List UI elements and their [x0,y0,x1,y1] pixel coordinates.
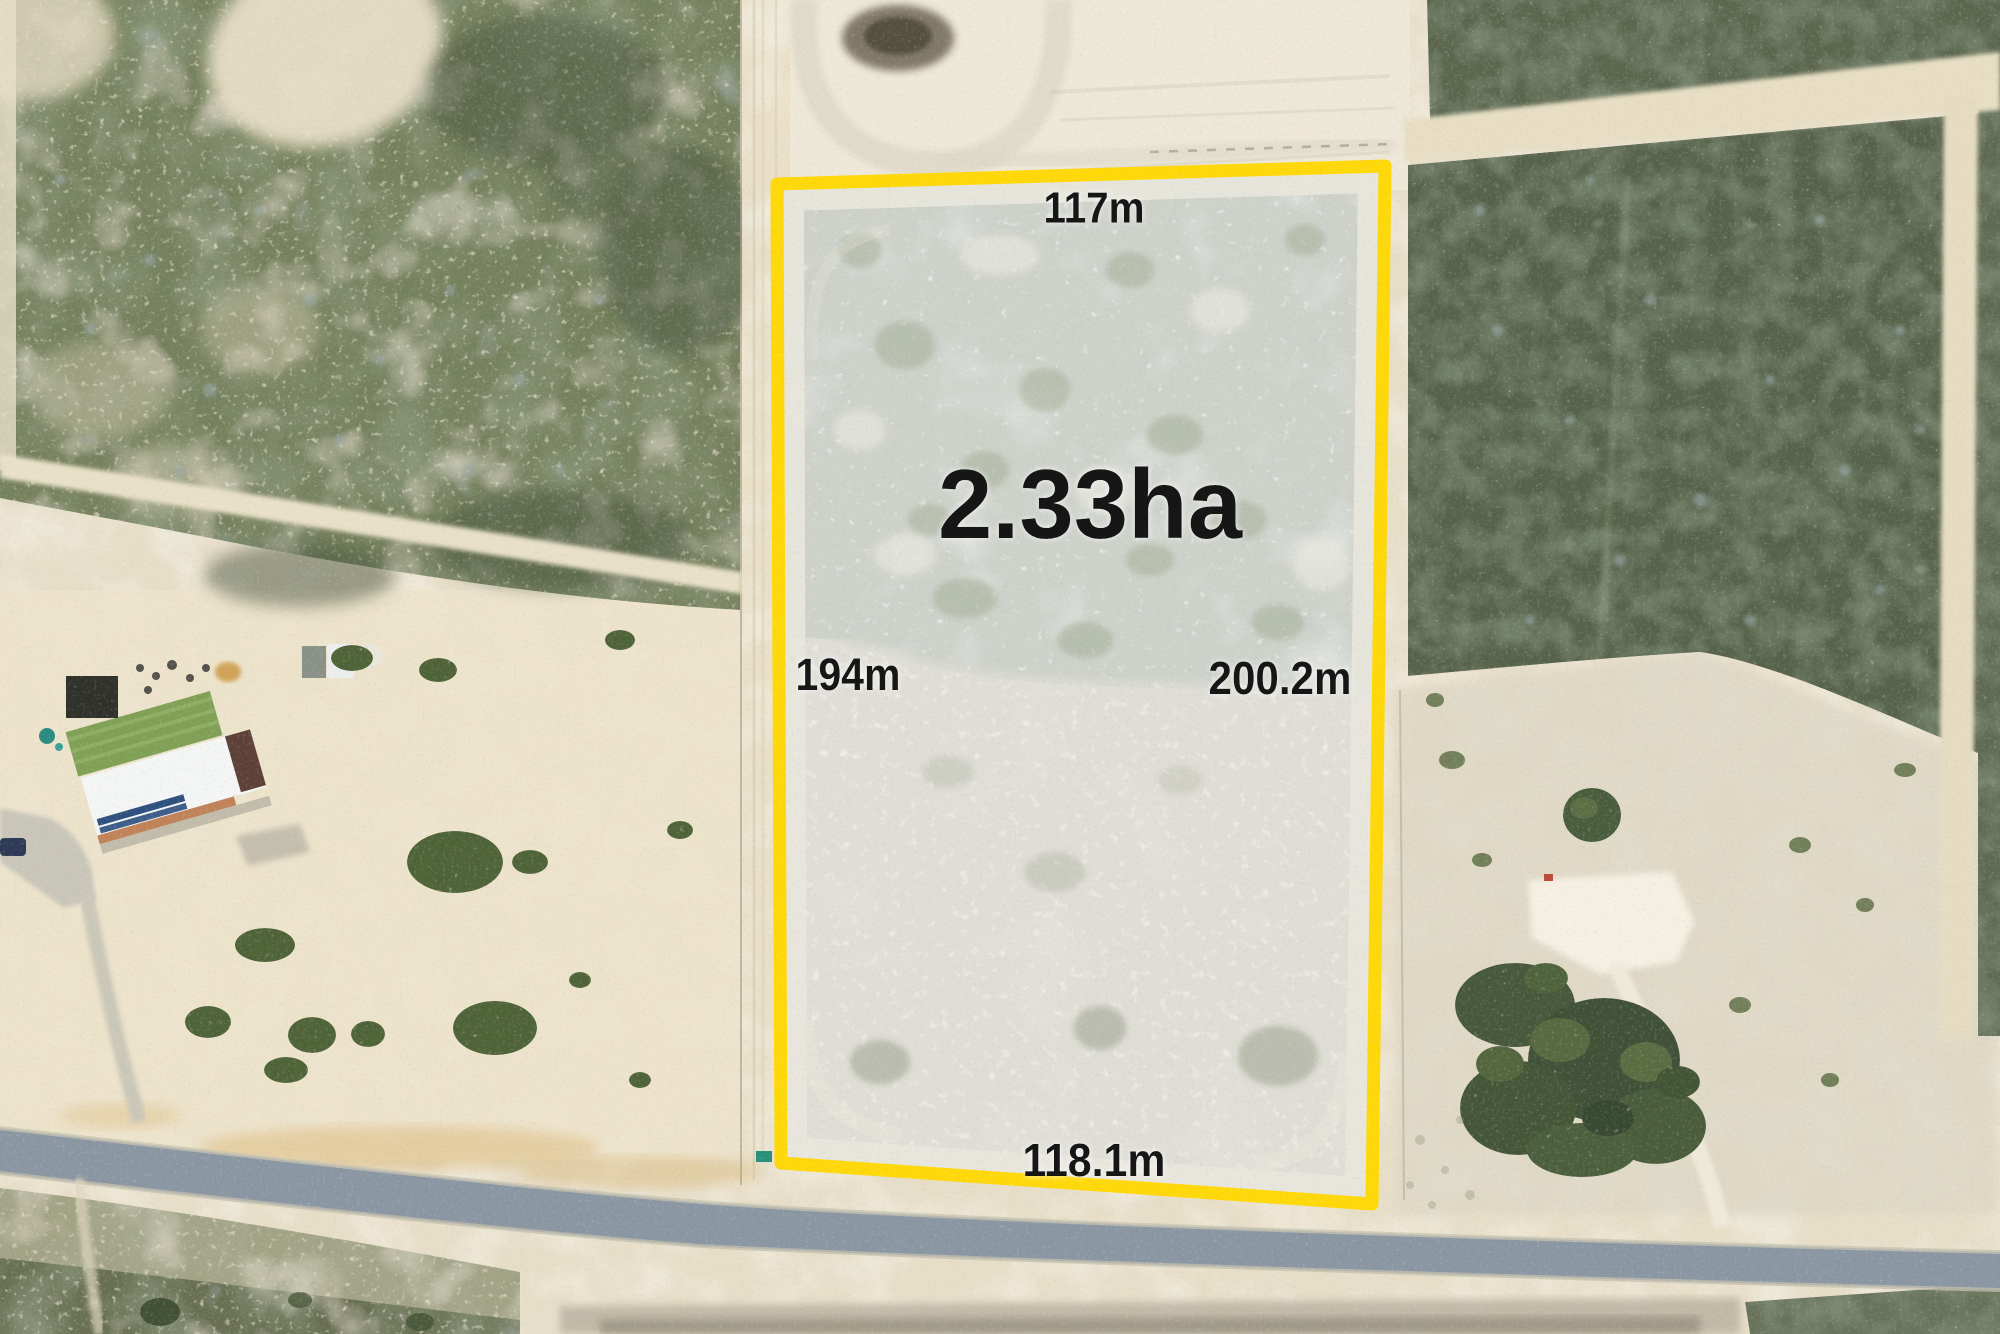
svg-text:194m: 194m [796,649,901,700]
svg-text:2.33ha: 2.33ha [938,449,1243,559]
svg-text:118.1m: 118.1m [1023,1134,1166,1186]
svg-text:117m: 117m [1044,184,1145,233]
svg-text:200.2m: 200.2m [1209,652,1352,704]
